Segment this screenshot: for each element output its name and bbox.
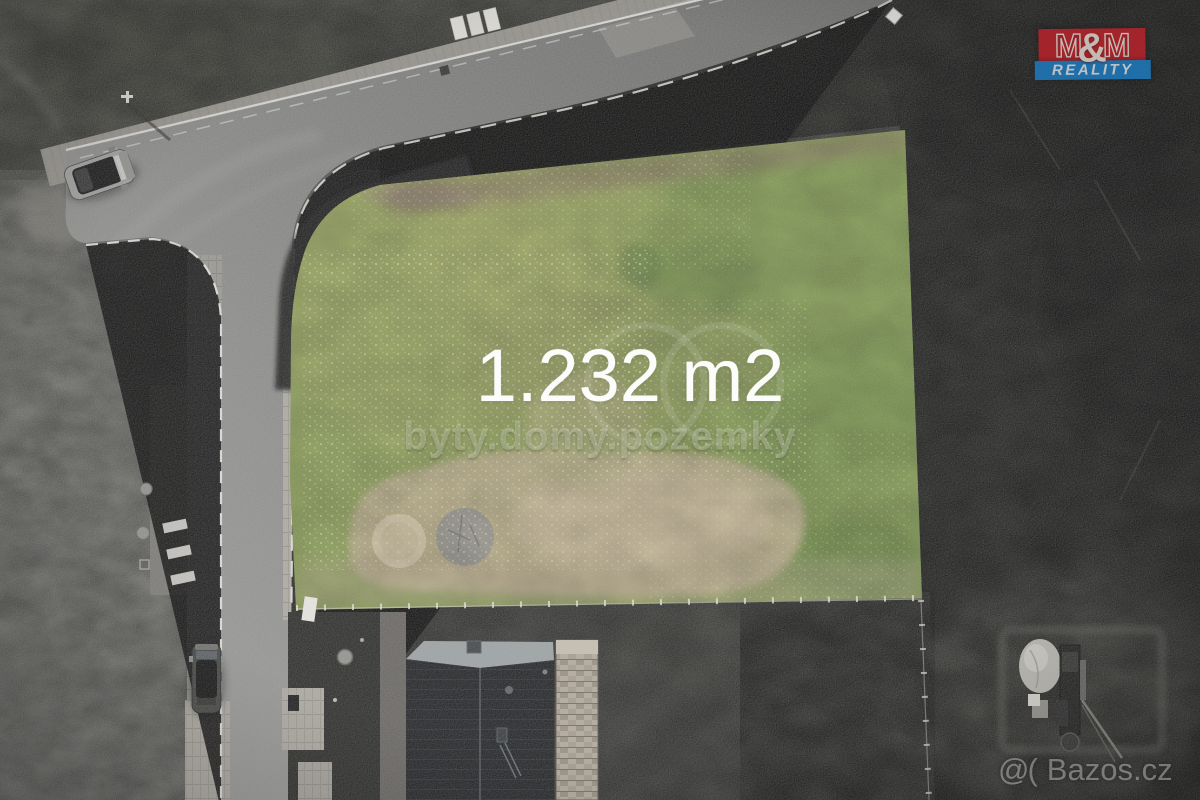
aerial-photo <box>0 0 1200 800</box>
vignette <box>0 0 1200 800</box>
screenshot: 1.232 m2 byty.domy.pozemky M&M REALITY @… <box>0 0 1200 800</box>
